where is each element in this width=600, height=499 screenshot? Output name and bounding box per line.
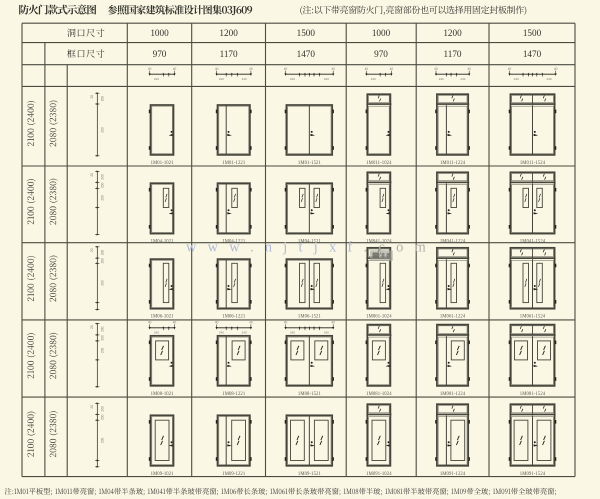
svg-text:20: 20 (90, 325, 94, 329)
svg-text:200: 200 (101, 195, 105, 201)
svg-text:40: 40 (434, 67, 438, 71)
svg-text:240: 240 (290, 330, 295, 334)
svg-text:970: 970 (153, 49, 167, 59)
svg-text:1M09-1021: 1M09-1021 (151, 472, 175, 477)
svg-text:200: 200 (101, 326, 105, 332)
svg-text:1M061-1524: 1M061-1524 (520, 315, 546, 320)
svg-text:200: 200 (101, 174, 105, 180)
svg-text:1500: 1500 (523, 28, 542, 38)
svg-text:40: 40 (148, 321, 152, 325)
svg-text:40: 40 (215, 67, 219, 71)
svg-text:1M01-1021: 1M01-1021 (151, 161, 175, 166)
svg-text:200: 200 (101, 127, 105, 133)
svg-text:20: 20 (90, 248, 94, 252)
svg-text:240: 240 (371, 77, 376, 81)
svg-text:200: 200 (101, 438, 105, 444)
svg-text:40: 40 (331, 321, 335, 325)
svg-text:200: 200 (101, 96, 105, 102)
svg-text:240: 240 (514, 77, 519, 81)
svg-text:1M041-1524: 1M041-1524 (520, 240, 546, 245)
svg-text:1M061-1024: 1M061-1024 (366, 315, 392, 320)
svg-text:1M06-1521: 1M06-1521 (298, 315, 322, 320)
svg-text:1M08-1021: 1M08-1021 (151, 392, 175, 397)
svg-text:1M091-1024: 1M091-1024 (366, 472, 392, 477)
svg-text:240: 240 (324, 330, 329, 334)
svg-text:1M091-1524: 1M091-1524 (520, 472, 546, 477)
svg-text:1M011-1024: 1M011-1024 (366, 161, 392, 166)
svg-text:970: 970 (374, 49, 388, 59)
svg-text:40: 40 (554, 67, 558, 71)
svg-text:1M061-1224: 1M061-1224 (440, 315, 466, 320)
svg-text:1M081-1524: 1M081-1524 (520, 392, 546, 397)
svg-text:1470: 1470 (297, 49, 316, 59)
svg-text:200: 200 (101, 406, 105, 412)
svg-text:240: 240 (154, 330, 159, 334)
svg-text:1M09-1221: 1M09-1221 (222, 472, 246, 477)
svg-text:240: 240 (219, 330, 224, 334)
svg-text:1M08-1221: 1M08-1221 (222, 392, 246, 397)
svg-text:200: 200 (101, 280, 105, 286)
svg-text:40: 40 (249, 321, 253, 325)
svg-text:240: 240 (154, 77, 159, 81)
svg-text:1000: 1000 (150, 28, 169, 38)
svg-text:40: 40 (284, 67, 288, 71)
svg-text:1200: 1200 (219, 28, 238, 38)
svg-text:1M09-1521: 1M09-1521 (298, 472, 322, 477)
svg-text:40: 40 (508, 67, 512, 71)
svg-text:240: 240 (460, 77, 465, 81)
svg-text:40: 40 (467, 67, 471, 71)
svg-text:1170: 1170 (220, 49, 238, 59)
svg-text:1M011-1224: 1M011-1224 (440, 161, 466, 166)
svg-text:1M091-1224: 1M091-1224 (440, 472, 466, 477)
svg-text:1M041-1224: 1M041-1224 (440, 240, 466, 245)
svg-text:1170: 1170 (443, 49, 461, 59)
svg-text:200: 200 (101, 258, 105, 264)
svg-text:200: 200 (101, 182, 105, 188)
svg-text:1M04-1021: 1M04-1021 (151, 240, 175, 245)
svg-text:240: 240 (290, 77, 295, 81)
svg-text:200: 200 (101, 348, 105, 354)
svg-text:20: 20 (90, 405, 94, 409)
svg-text:1M081-1224: 1M081-1224 (440, 392, 466, 397)
svg-text:20: 20 (90, 95, 94, 99)
svg-text:200: 200 (101, 335, 105, 341)
svg-text:240: 240 (242, 330, 247, 334)
svg-text:240: 240 (242, 77, 247, 81)
svg-text:1000: 1000 (372, 28, 391, 38)
svg-text:240: 240 (439, 77, 444, 81)
svg-text:40: 40 (284, 321, 288, 325)
svg-text:40: 40 (365, 67, 369, 71)
svg-text:200: 200 (101, 414, 105, 420)
svg-text:40: 40 (173, 67, 177, 71)
svg-text:200: 200 (101, 250, 105, 256)
svg-text:240: 240 (324, 77, 329, 81)
svg-text:1M08-1521: 1M08-1521 (298, 392, 322, 397)
svg-text:1500: 1500 (297, 28, 316, 38)
svg-text:40: 40 (331, 67, 335, 71)
svg-text:240: 240 (546, 77, 551, 81)
svg-text:www.njtjxf.com: www.njtjxf.com (186, 240, 437, 256)
svg-text:1M06-1021: 1M06-1021 (151, 315, 175, 320)
svg-text:40: 40 (173, 321, 177, 325)
svg-text:1M01-1521: 1M01-1521 (298, 161, 322, 166)
svg-text:1M01-1221: 1M01-1221 (222, 161, 246, 166)
svg-text:1200: 1200 (443, 28, 462, 38)
svg-text:1M06-1221: 1M06-1221 (222, 315, 246, 320)
svg-text:40: 40 (215, 321, 219, 325)
svg-text:20: 20 (90, 173, 94, 177)
svg-text:40: 40 (390, 67, 394, 71)
svg-text:240: 240 (219, 77, 224, 81)
svg-text:40: 40 (249, 67, 253, 71)
svg-text:1M011-1524: 1M011-1524 (520, 161, 546, 166)
svg-text:1470: 1470 (523, 49, 542, 59)
svg-text:40: 40 (148, 67, 152, 71)
svg-text:1M081-1024: 1M081-1024 (366, 392, 392, 397)
